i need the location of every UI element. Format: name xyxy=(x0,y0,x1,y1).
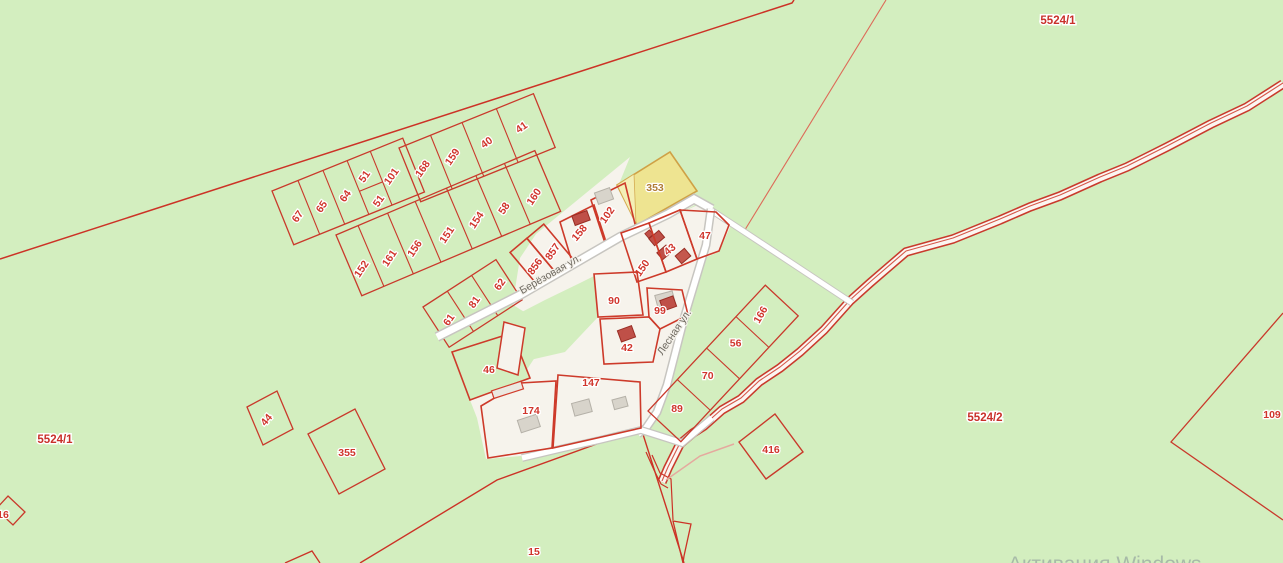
svg-text:353: 353 xyxy=(646,182,664,194)
svg-text:16: 16 xyxy=(0,509,9,521)
svg-text:89: 89 xyxy=(671,403,683,415)
svg-text:70: 70 xyxy=(702,370,714,382)
svg-text:416: 416 xyxy=(762,444,780,456)
svg-text:46: 46 xyxy=(483,364,495,376)
svg-text:47: 47 xyxy=(699,230,711,242)
svg-text:56: 56 xyxy=(730,337,742,349)
svg-text:5524/1: 5524/1 xyxy=(37,434,73,446)
svg-text:42: 42 xyxy=(621,342,633,354)
svg-text:90: 90 xyxy=(608,295,620,307)
svg-text:99: 99 xyxy=(654,305,666,317)
svg-text:15: 15 xyxy=(528,546,540,558)
svg-text:355: 355 xyxy=(338,447,356,459)
svg-text:109: 109 xyxy=(1263,409,1281,421)
svg-text:Активация Windows: Активация Windows xyxy=(1008,553,1202,563)
svg-text:174: 174 xyxy=(522,405,540,417)
svg-text:5524/2: 5524/2 xyxy=(967,412,1002,424)
svg-text:5524/1: 5524/1 xyxy=(1040,15,1076,27)
svg-text:147: 147 xyxy=(582,377,600,389)
